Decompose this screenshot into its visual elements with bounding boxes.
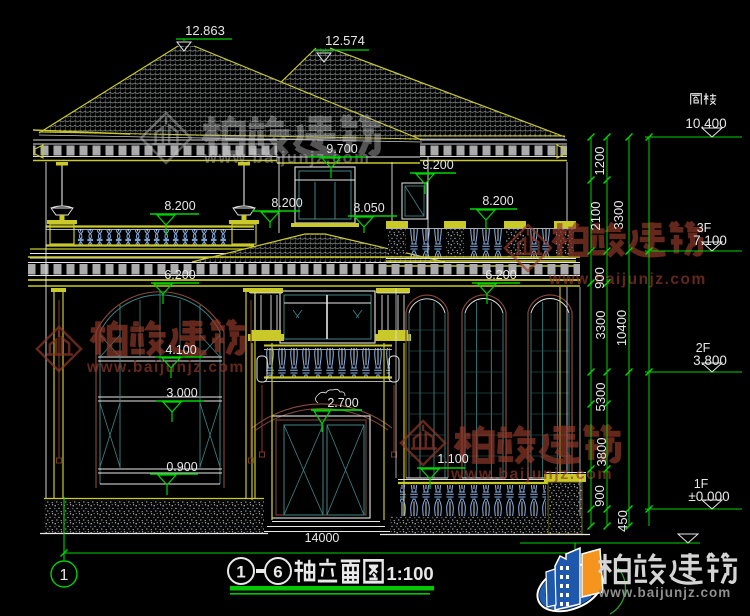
svg-text:1: 1 xyxy=(60,567,69,584)
svg-text:4.100: 4.100 xyxy=(165,343,196,357)
svg-text:8.050: 8.050 xyxy=(353,201,384,215)
svg-text:14000: 14000 xyxy=(305,531,340,545)
svg-text:www.baijunjz.com: www.baijunjz.com xyxy=(450,466,613,483)
svg-text:450: 450 xyxy=(615,510,630,532)
svg-text:5300: 5300 xyxy=(593,383,608,412)
svg-text:6: 6 xyxy=(273,563,282,582)
svg-text:0.900: 0.900 xyxy=(166,460,197,474)
svg-text:1:100: 1:100 xyxy=(386,563,433,584)
svg-text:6.200: 6.200 xyxy=(164,268,195,282)
svg-text:900: 900 xyxy=(592,267,607,289)
svg-text:www.baijunjz.com: www.baijunjz.com xyxy=(598,585,732,600)
svg-text:2100: 2100 xyxy=(588,202,603,231)
svg-text:8.200: 8.200 xyxy=(164,199,195,213)
svg-text:12.863: 12.863 xyxy=(185,23,225,38)
svg-text:3800: 3800 xyxy=(594,438,609,467)
svg-text:9.200: 9.200 xyxy=(422,158,453,172)
svg-text:10400: 10400 xyxy=(614,310,629,346)
svg-text:1.100: 1.100 xyxy=(437,452,468,466)
svg-text:3.000: 3.000 xyxy=(166,386,197,400)
svg-text:10.400: 10.400 xyxy=(685,116,726,131)
svg-text:7.100: 7.100 xyxy=(693,233,727,248)
svg-text:3300: 3300 xyxy=(611,201,626,230)
svg-text:6.200: 6.200 xyxy=(485,268,516,282)
svg-text:900: 900 xyxy=(592,485,607,507)
svg-text:1200: 1200 xyxy=(592,147,607,176)
svg-text:12.574: 12.574 xyxy=(325,33,365,48)
svg-text:2.700: 2.700 xyxy=(327,396,358,410)
svg-text:3.800: 3.800 xyxy=(693,353,727,368)
svg-text:8.200: 8.200 xyxy=(271,196,302,210)
svg-text:±0.000: ±0.000 xyxy=(688,489,729,504)
svg-text:9.700: 9.700 xyxy=(326,142,357,156)
svg-text:3300: 3300 xyxy=(593,311,608,340)
svg-text:1: 1 xyxy=(236,563,245,582)
svg-text:www.baijunjz.com: www.baijunjz.com xyxy=(548,271,707,288)
svg-text:8.200: 8.200 xyxy=(482,194,513,208)
